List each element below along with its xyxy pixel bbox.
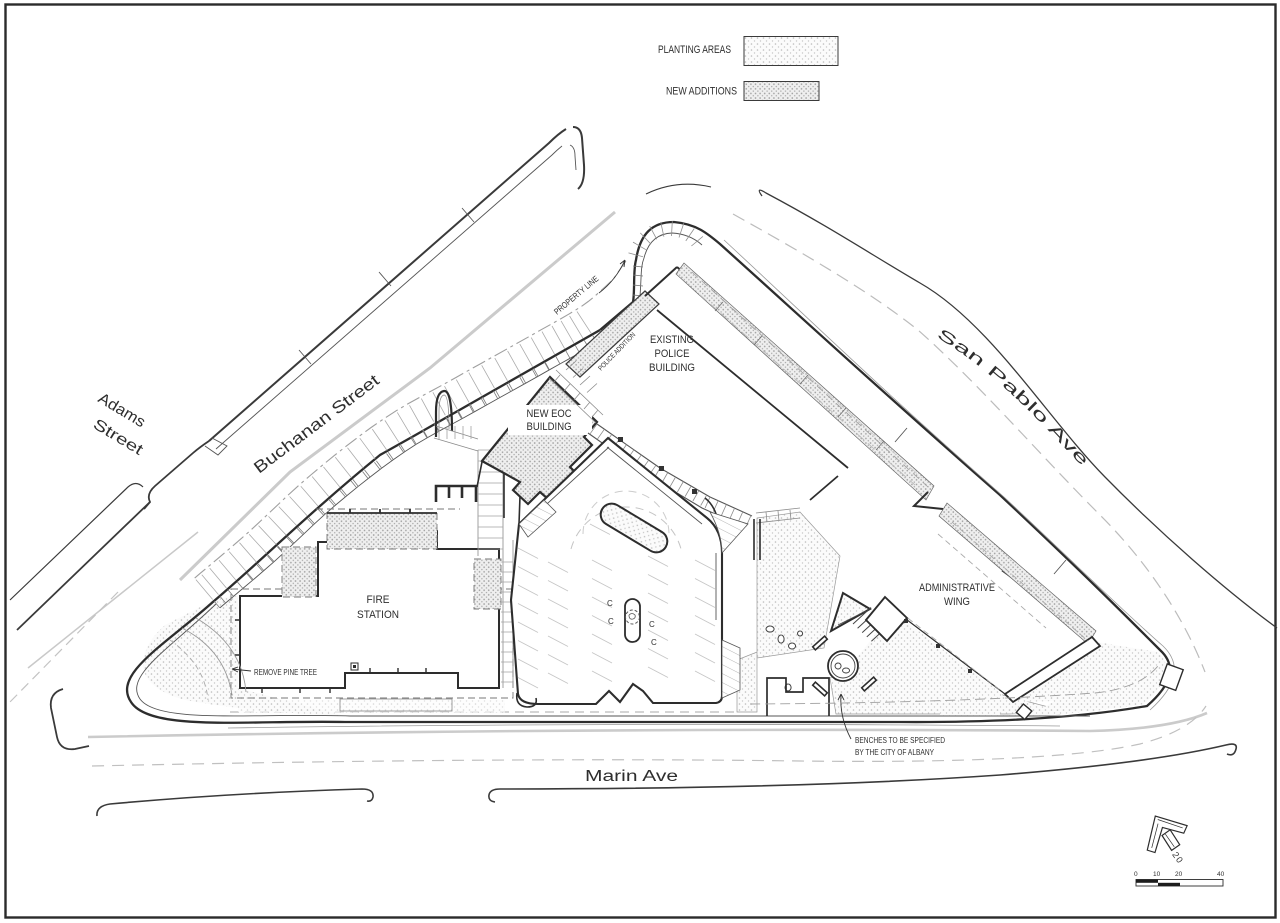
svg-text:20: 20	[1175, 871, 1183, 878]
svg-text:POLICE: POLICE	[655, 348, 690, 360]
svg-text:C: C	[649, 620, 655, 629]
svg-text:REMOVE PINE TREE: REMOVE PINE TREE	[254, 668, 317, 677]
svg-text:BUILDING: BUILDING	[527, 421, 572, 433]
svg-text:10: 10	[1153, 871, 1161, 878]
svg-text:C: C	[651, 638, 657, 647]
svg-text:C: C	[608, 617, 614, 626]
svg-text:BUILDING: BUILDING	[649, 362, 695, 374]
svg-text:NEW EOC: NEW EOC	[527, 408, 572, 420]
svg-text:NEW ADDITIONS: NEW ADDITIONS	[666, 86, 737, 98]
svg-text:40: 40	[1217, 871, 1225, 878]
svg-text:FIRE: FIRE	[367, 594, 390, 606]
svg-text:0: 0	[1134, 871, 1138, 878]
svg-text:STATION: STATION	[357, 609, 399, 621]
svg-text:PLANTING AREAS: PLANTING AREAS	[658, 44, 731, 56]
svg-text:ADMINISTRATIVE: ADMINISTRATIVE	[919, 582, 995, 594]
svg-text:BENCHES TO BE SPECIFIED: BENCHES TO BE SPECIFIED	[855, 736, 945, 745]
svg-text:C: C	[607, 599, 613, 608]
svg-text:BY THE CITY OF ALBANY: BY THE CITY OF ALBANY	[855, 748, 935, 757]
svg-text:Marin Ave: Marin Ave	[585, 768, 678, 785]
svg-text:WING: WING	[944, 596, 970, 608]
